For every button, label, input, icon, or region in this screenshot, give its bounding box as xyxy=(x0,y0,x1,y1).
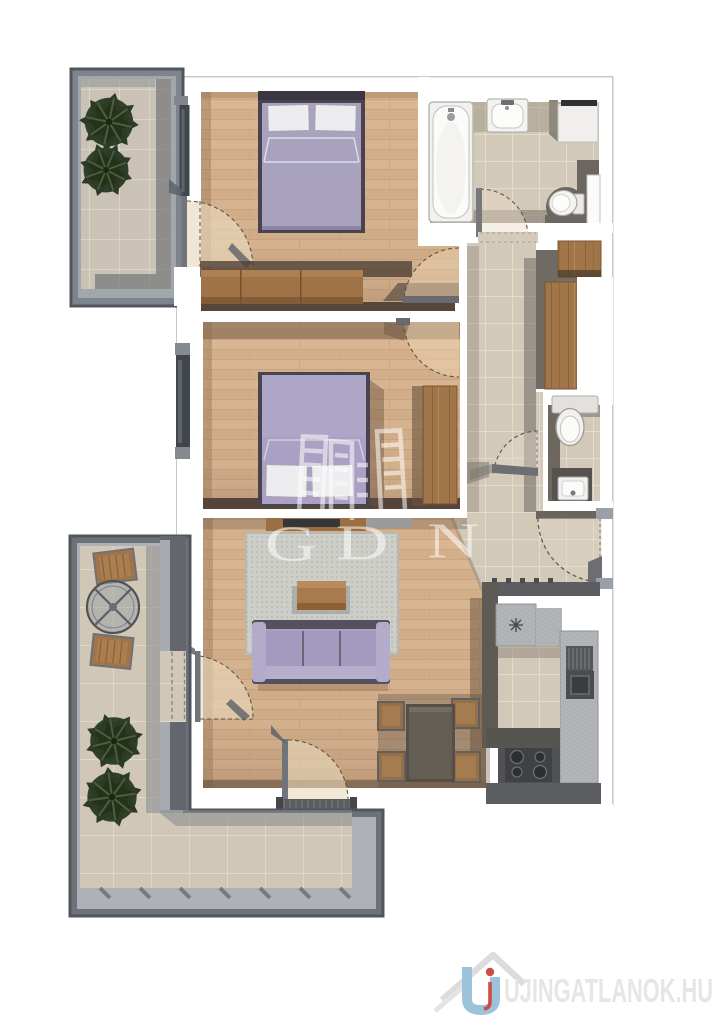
svg-text:D: D xyxy=(336,516,388,571)
svg-text:UJINGATLANOK.HU: UJINGATLANOK.HU xyxy=(504,972,713,1009)
svg-text:G: G xyxy=(265,517,317,572)
svg-text:N: N xyxy=(427,514,479,569)
